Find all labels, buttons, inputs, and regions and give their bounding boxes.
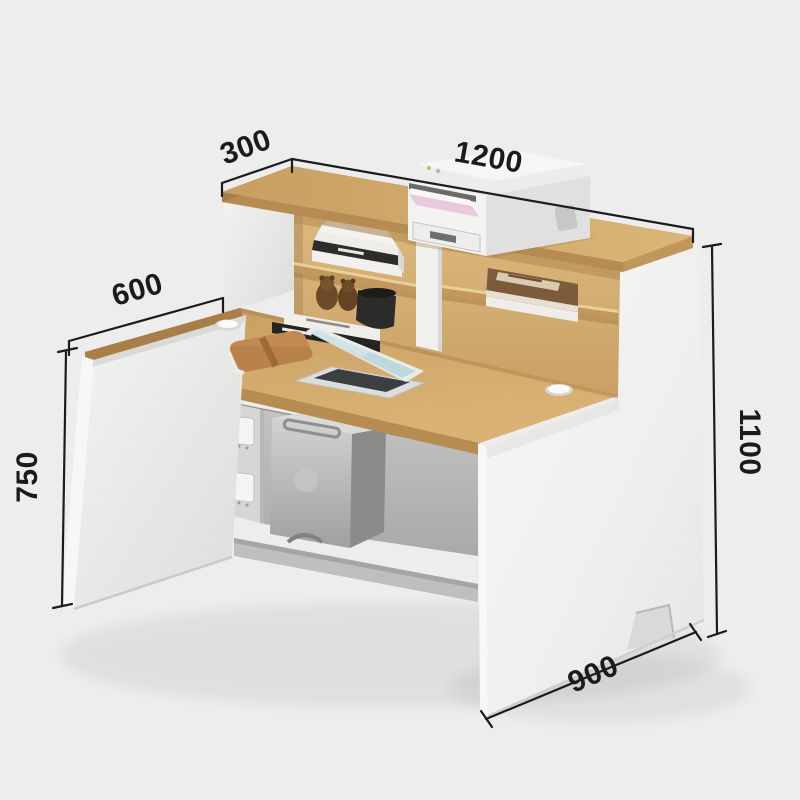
pc-side [350,428,386,548]
printer-button-2 [436,169,440,173]
pc-logo [294,468,318,492]
outlet-pillar-edge [260,409,264,524]
printer-button [427,166,431,170]
cable-grommet-right [545,384,573,396]
dim-label-desktop-height: 750 [11,451,44,503]
cable-grommet-left [215,320,241,331]
hutch-divider-edge [438,236,442,352]
dim-label-overall-height: 1100 [733,408,766,475]
storage-pot [356,288,396,329]
pc-tower [270,412,386,548]
product-photo-canvas: 300 1200 600 750 1100 900 [0,0,800,800]
